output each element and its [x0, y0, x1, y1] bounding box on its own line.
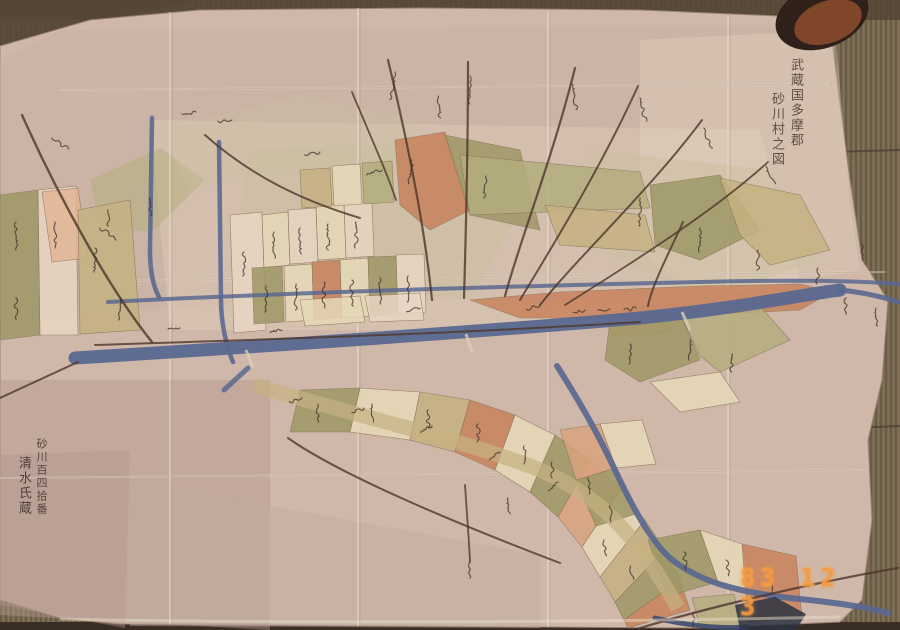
photo-of-old-map: 武蔵国多摩郡 砂川村之図 砂川百四拾番 清水氏蔵 83 12 3 [0, 0, 900, 630]
parcel [300, 296, 365, 326]
map-title: 武蔵国多摩郡 砂川村之図 [758, 58, 805, 218]
parcel [332, 164, 362, 206]
parcel [288, 208, 318, 264]
parcel [262, 212, 290, 268]
map-title-line-1: 武蔵国多摩郡 [786, 58, 805, 218]
camera-date-stamp: 83 12 3 [740, 563, 870, 621]
parcel [344, 202, 374, 258]
map-title-line-2: 砂川村之図 [767, 58, 786, 218]
parcel [0, 190, 40, 340]
owner-annotation-line-2: 清水氏蔵 [14, 438, 33, 628]
owner-annotation-line-1: 砂川百四拾番 [33, 438, 49, 628]
owner-annotation: 砂川百四拾番 清水氏蔵 [4, 438, 49, 628]
